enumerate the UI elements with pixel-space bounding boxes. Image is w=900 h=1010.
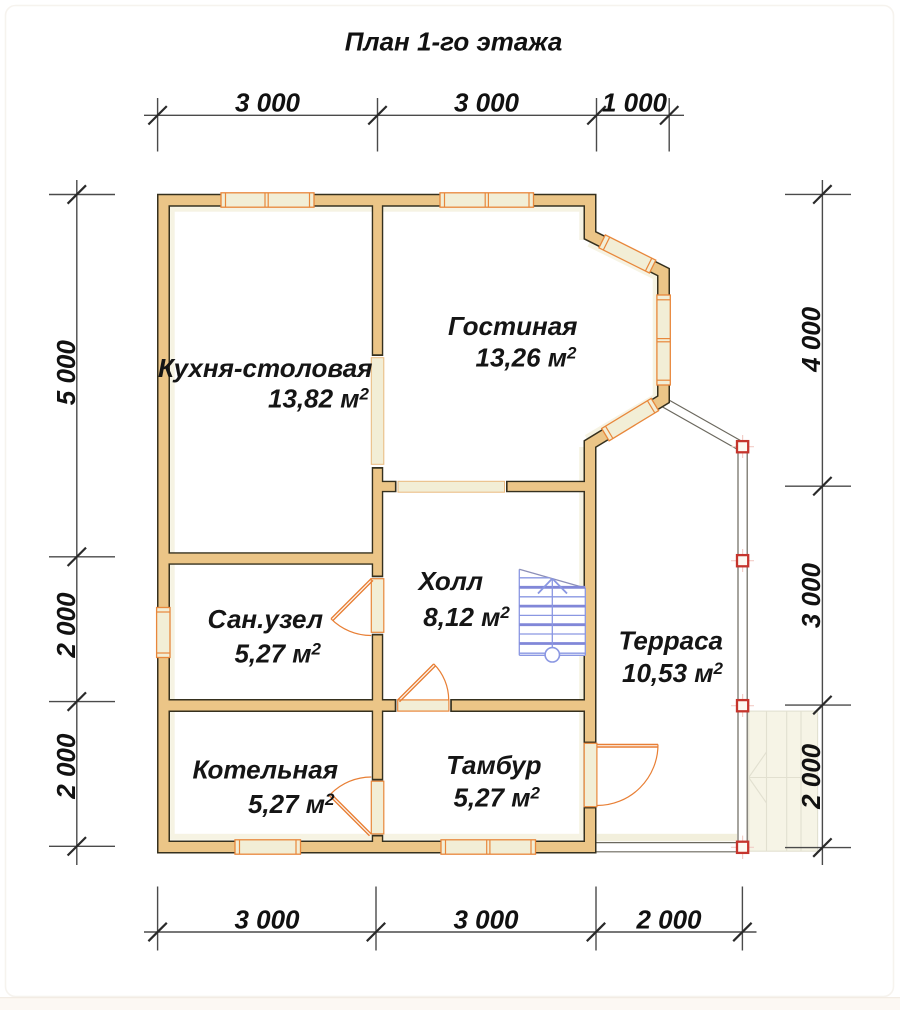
svg-text:3 000: 3 000 [453,905,519,935]
svg-text:Холл: Холл [417,566,484,596]
svg-text:5,27 м2: 5,27 м2 [453,783,540,813]
svg-text:Терраса: Терраса [619,626,724,656]
svg-text:5,27 м2: 5,27 м2 [248,789,335,819]
svg-text:2 000: 2 000 [635,905,702,935]
svg-text:3 000: 3 000 [235,88,301,118]
svg-text:Кухня-столовая: Кухня-столовая [158,353,373,383]
svg-text:Котельная: Котельная [192,755,338,785]
svg-text:2 000: 2 000 [51,733,81,800]
svg-text:2 000: 2 000 [796,743,826,810]
svg-text:3 000: 3 000 [454,88,520,118]
svg-text:Тамбур: Тамбур [446,750,541,780]
svg-text:Гостиная: Гостиная [448,311,577,341]
svg-text:Сан.узел: Сан.узел [208,604,323,634]
svg-text:5 000: 5 000 [51,340,81,406]
svg-text:13,26 м2: 13,26 м2 [476,343,578,373]
svg-text:10,53 м2: 10,53 м2 [622,658,724,688]
svg-text:8,12 м2: 8,12 м2 [423,602,510,632]
svg-text:1 000: 1 000 [602,88,668,118]
svg-text:План 1-го этажа: План 1-го этажа [345,27,563,57]
svg-text:2 000: 2 000 [51,592,81,659]
svg-text:4 000: 4 000 [796,306,826,373]
svg-text:3 000: 3 000 [796,563,826,629]
svg-text:13,82 м2: 13,82 м2 [268,384,370,414]
svg-text:5,27 м2: 5,27 м2 [234,639,321,669]
svg-text:3 000: 3 000 [234,905,300,935]
